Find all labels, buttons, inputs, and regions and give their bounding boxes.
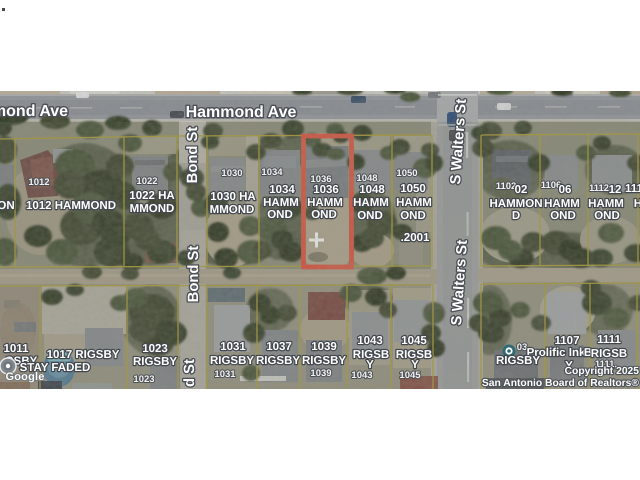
svg-text:1039: 1039 bbox=[310, 368, 331, 379]
svg-text:1048: 1048 bbox=[356, 173, 377, 184]
svg-text:OND: OND bbox=[311, 209, 337, 221]
svg-text:HAMM: HAMM bbox=[307, 197, 343, 209]
svg-text:OND: OND bbox=[594, 210, 620, 222]
svg-text:1022 HA: 1022 HA bbox=[129, 190, 174, 202]
svg-text:1039: 1039 bbox=[311, 341, 337, 353]
svg-text:OND: OND bbox=[357, 210, 383, 222]
svg-text:06: 06 bbox=[559, 184, 572, 196]
svg-text:1011: 1011 bbox=[4, 343, 30, 355]
svg-text:1031: 1031 bbox=[220, 341, 246, 353]
svg-text:Copyright 2025: Copyright 2025 bbox=[565, 366, 640, 377]
svg-text:RIGSBY: RIGSBY bbox=[133, 356, 177, 368]
svg-text:1030 HA: 1030 HA bbox=[210, 191, 255, 203]
svg-text:HAMM: HAMM bbox=[396, 197, 432, 209]
svg-text:HAMM: HAMM bbox=[263, 197, 299, 209]
svg-text:RIGSBY: RIGSBY bbox=[210, 355, 254, 367]
svg-text:San Antonio Board of Realtors®: San Antonio Board of Realtors® bbox=[482, 378, 640, 389]
svg-text:MMOND: MMOND bbox=[130, 203, 175, 215]
svg-text:Bond St: Bond St bbox=[186, 246, 202, 303]
svg-text:HAMM: HAMM bbox=[544, 198, 580, 210]
svg-text:1017 RIGSBY: 1017 RIGSBY bbox=[47, 349, 120, 361]
svg-text:Google: Google bbox=[6, 371, 45, 383]
svg-text:1036: 1036 bbox=[313, 184, 339, 196]
svg-text:HAMM: HAMM bbox=[353, 197, 389, 209]
svg-text:1048: 1048 bbox=[359, 184, 385, 196]
svg-text:Bond St: Bond St bbox=[185, 127, 201, 184]
svg-text:ON: ON bbox=[0, 200, 15, 212]
svg-text:1012 HAMMOND: 1012 HAMMOND bbox=[26, 200, 116, 212]
svg-text:OND: OND bbox=[550, 210, 576, 222]
svg-text:1102: 1102 bbox=[496, 181, 517, 192]
svg-text:1030: 1030 bbox=[221, 168, 242, 179]
svg-text:02: 02 bbox=[515, 184, 528, 196]
svg-text:OND: OND bbox=[400, 210, 426, 222]
svg-text:RIGSBY: RIGSBY bbox=[496, 355, 540, 367]
svg-text:1107: 1107 bbox=[555, 335, 580, 347]
svg-text:1012: 1012 bbox=[28, 177, 49, 188]
svg-text:1034: 1034 bbox=[261, 167, 283, 178]
svg-text:HAMM: HAMM bbox=[588, 198, 624, 210]
svg-text:RIGSBY: RIGSBY bbox=[302, 355, 346, 367]
svg-text:1043: 1043 bbox=[351, 370, 372, 381]
svg-text:1023: 1023 bbox=[142, 343, 168, 355]
svg-text:1045: 1045 bbox=[399, 370, 421, 381]
svg-text:1043: 1043 bbox=[357, 335, 383, 347]
svg-text:mond Ave: mond Ave bbox=[0, 103, 68, 120]
svg-text:1050: 1050 bbox=[396, 168, 417, 179]
svg-text:1023: 1023 bbox=[133, 374, 154, 385]
svg-text:D: D bbox=[512, 210, 520, 222]
svg-text:111: 111 bbox=[625, 183, 640, 195]
svg-text:MMOND: MMOND bbox=[210, 204, 255, 216]
svg-text:1037: 1037 bbox=[266, 341, 292, 353]
svg-text:.2001: .2001 bbox=[401, 232, 430, 244]
svg-text:1034: 1034 bbox=[269, 184, 295, 196]
svg-text:HAMMON: HAMMON bbox=[489, 198, 542, 210]
svg-text:12: 12 bbox=[609, 184, 622, 196]
svg-text:OND: OND bbox=[267, 209, 293, 221]
svg-text:1045: 1045 bbox=[401, 335, 427, 347]
svg-text:1111: 1111 bbox=[597, 334, 621, 346]
svg-text:Hammond Ave: Hammond Ave bbox=[186, 104, 297, 121]
svg-text:1031: 1031 bbox=[214, 369, 236, 380]
svg-text:1022: 1022 bbox=[136, 176, 157, 187]
svg-text:1112: 1112 bbox=[589, 183, 609, 194]
svg-text:1050: 1050 bbox=[400, 183, 426, 195]
svg-text:RIGSBY: RIGSBY bbox=[256, 355, 300, 367]
svg-text:d St: d St bbox=[182, 359, 198, 387]
svg-text:HA: HA bbox=[634, 198, 640, 210]
